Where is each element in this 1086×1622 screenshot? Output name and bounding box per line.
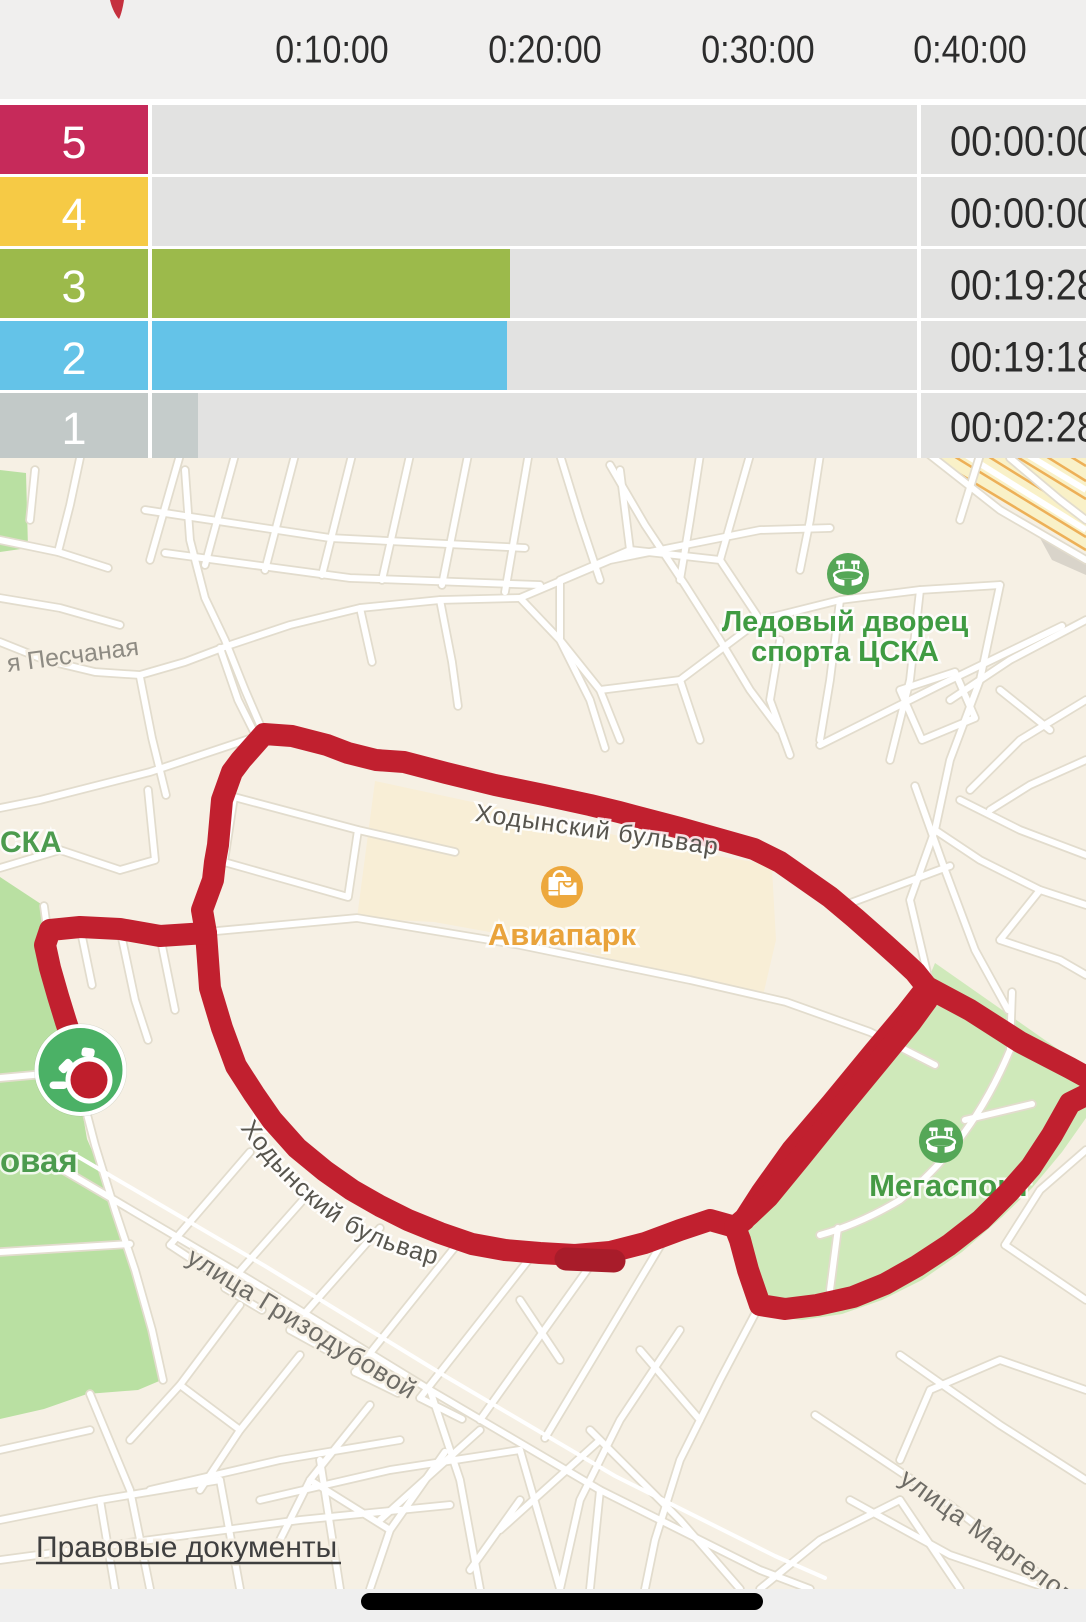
svg-text:спорта ЦСКА: спорта ЦСКА (751, 636, 939, 668)
svg-text:СКА: СКА (0, 826, 62, 859)
svg-text:овая: овая (0, 1142, 78, 1179)
svg-text:Авиапарк: Авиапарк (488, 917, 637, 952)
svg-text:Правовые документы: Правовые документы (36, 1531, 337, 1564)
svg-text:Ледовый дворец: Ледовый дворец (722, 606, 968, 638)
